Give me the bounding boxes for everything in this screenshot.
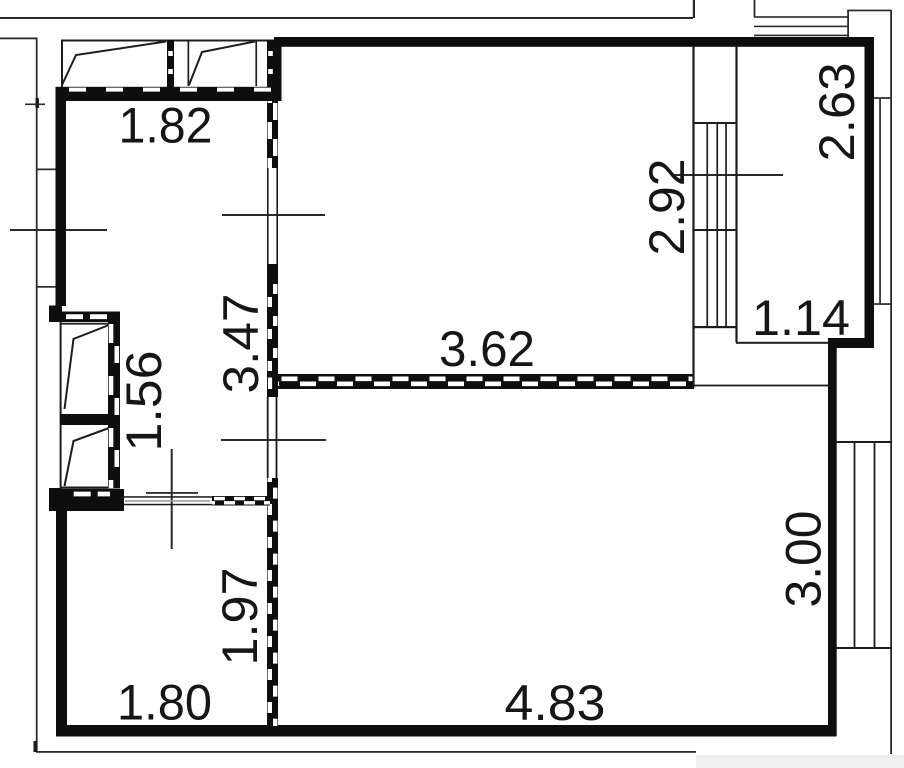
svg-text:3.47: 3.47 [213, 294, 269, 394]
svg-text:1.14: 1.14 [752, 290, 850, 346]
svg-text:3.62: 3.62 [439, 321, 535, 377]
svg-text:1.82: 1.82 [119, 98, 213, 154]
svg-text:1.80: 1.80 [117, 675, 212, 731]
svg-text:1.97: 1.97 [212, 568, 268, 666]
svg-text:3.00: 3.00 [776, 511, 832, 608]
svg-text:1.56: 1.56 [116, 351, 172, 452]
svg-text:2.63: 2.63 [809, 63, 865, 162]
svg-text:2.92: 2.92 [639, 159, 695, 256]
svg-text:4.83: 4.83 [505, 675, 606, 731]
